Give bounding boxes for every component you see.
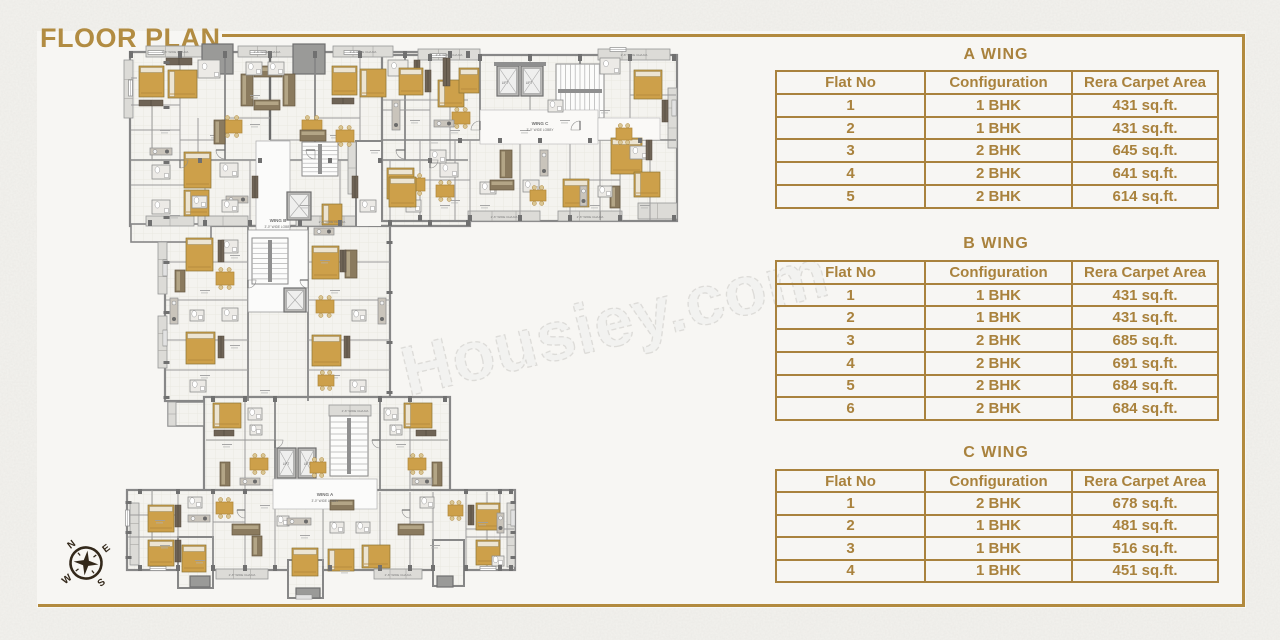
svg-text:3'-0" WIDE LOBBY: 3'-0" WIDE LOBBY [264, 225, 292, 229]
svg-text:3'-0" WIDE LOBBY: 3'-0" WIDE LOBBY [526, 128, 554, 132]
svg-text:2'-6" WIDE CHAJJA: 2'-6" WIDE CHAJJA [385, 573, 412, 577]
svg-text:2'-6" WIDE CHAJJA: 2'-6" WIDE CHAJJA [229, 573, 256, 577]
svg-text:S: S [96, 577, 108, 590]
svg-text:W: W [60, 572, 75, 587]
svg-text:LIFT: LIFT [304, 462, 311, 466]
svg-text:2'-6" WIDE CHAJJA: 2'-6" WIDE CHAJJA [319, 220, 346, 224]
svg-text:LIFT: LIFT [526, 81, 533, 85]
svg-text:2'-6" WIDE CHAJJA: 2'-6" WIDE CHAJJA [621, 53, 648, 57]
svg-text:2'-6" WIDE CHAJJA: 2'-6" WIDE CHAJJA [254, 50, 281, 54]
svg-text:2'-6" WIDE CHAJJA: 2'-6" WIDE CHAJJA [350, 50, 377, 54]
svg-text:LIFT: LIFT [283, 462, 290, 466]
svg-text:2'-6" WIDE CHAJJA: 2'-6" WIDE CHAJJA [436, 53, 463, 57]
svg-text:2'-6" WIDE CHAJJA: 2'-6" WIDE CHAJJA [162, 50, 189, 54]
svg-text:2'-6" WIDE CHAJJA: 2'-6" WIDE CHAJJA [491, 215, 518, 219]
svg-text:E: E [101, 542, 113, 555]
svg-text:WING A: WING A [317, 492, 334, 497]
svg-text:WING B: WING B [270, 218, 287, 223]
svg-text:2'-6" WIDE CHAJJA: 2'-6" WIDE CHAJJA [342, 409, 369, 413]
svg-text:3'-0" WIDE LOBBY: 3'-0" WIDE LOBBY [311, 499, 339, 503]
svg-text:LIFT: LIFT [502, 81, 509, 85]
svg-text:WING C: WING C [532, 121, 549, 126]
svg-text:2'-6" WIDE CHAJJA: 2'-6" WIDE CHAJJA [577, 215, 604, 219]
